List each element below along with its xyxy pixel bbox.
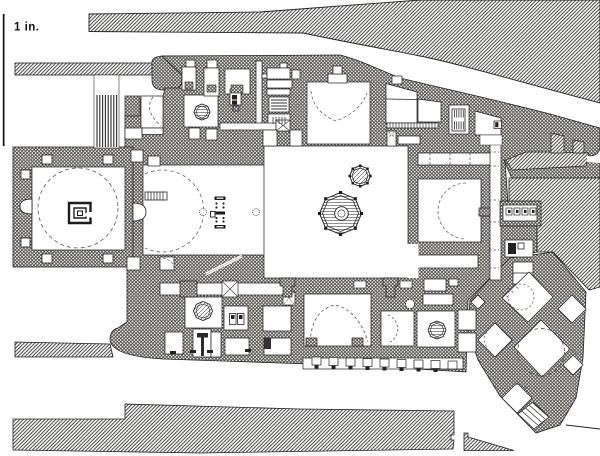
svg-text:1 in.: 1 in. bbox=[14, 22, 40, 34]
